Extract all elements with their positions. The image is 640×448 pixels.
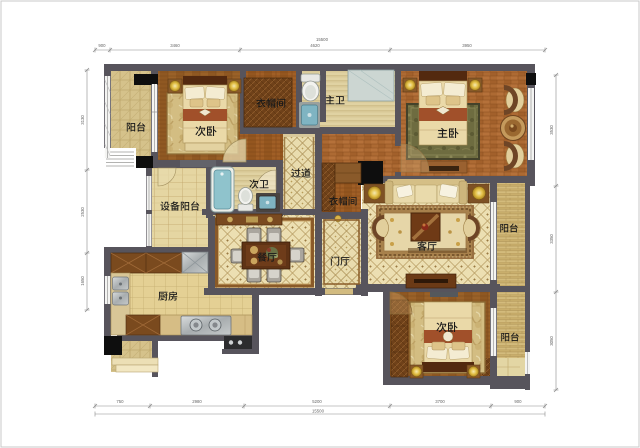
svg-text:900: 900 [514,399,522,404]
svg-text:15500: 15500 [316,37,329,42]
svg-text:3950: 3950 [462,43,472,48]
svg-text:2980: 2980 [192,399,202,404]
svg-text:1650: 1650 [80,276,85,286]
svg-text:900: 900 [98,43,106,48]
svg-text:4620: 4620 [310,43,320,48]
svg-text:750: 750 [116,399,124,404]
svg-text:3050: 3050 [549,336,554,346]
svg-text:3460: 3460 [170,43,180,48]
svg-text:3350: 3350 [549,234,554,244]
svg-text:3130: 3130 [80,115,85,125]
svg-text:2530: 2530 [80,207,85,217]
svg-text:5200: 5200 [312,399,322,404]
svg-text:3530: 3530 [549,125,554,135]
svg-text:3700: 3700 [435,399,445,404]
svg-text:15500: 15500 [312,409,325,414]
